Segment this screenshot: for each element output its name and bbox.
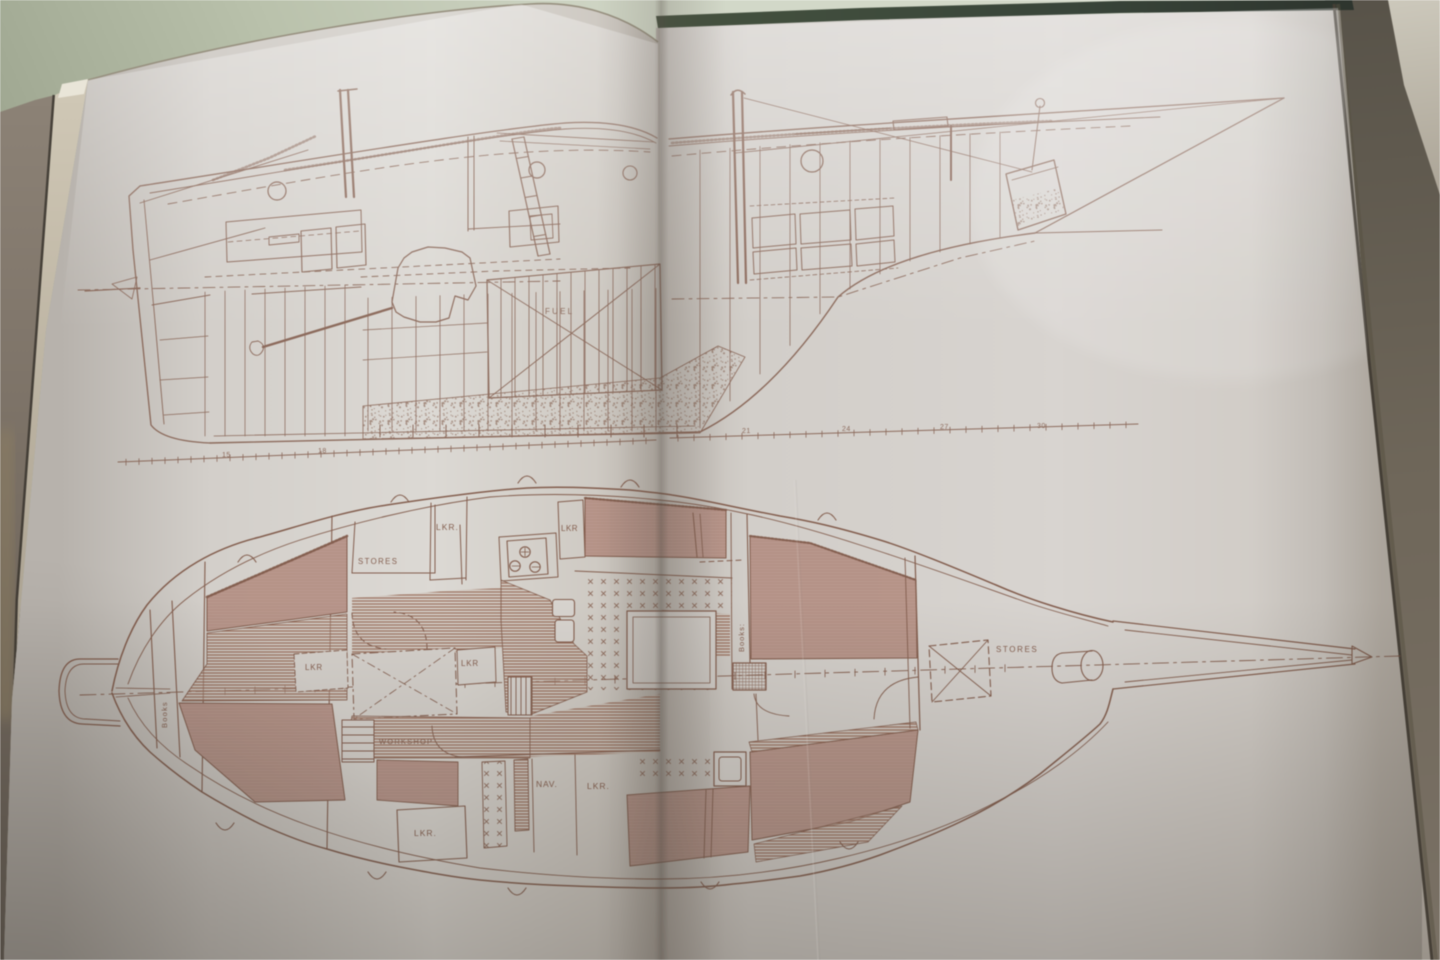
svg-text:18: 18 [318, 448, 327, 455]
svg-text:27: 27 [940, 424, 949, 431]
svg-text:15: 15 [222, 452, 231, 459]
svg-text:24: 24 [842, 426, 851, 433]
svg-text:21: 21 [742, 428, 751, 435]
svg-text:30: 30 [1037, 423, 1046, 430]
